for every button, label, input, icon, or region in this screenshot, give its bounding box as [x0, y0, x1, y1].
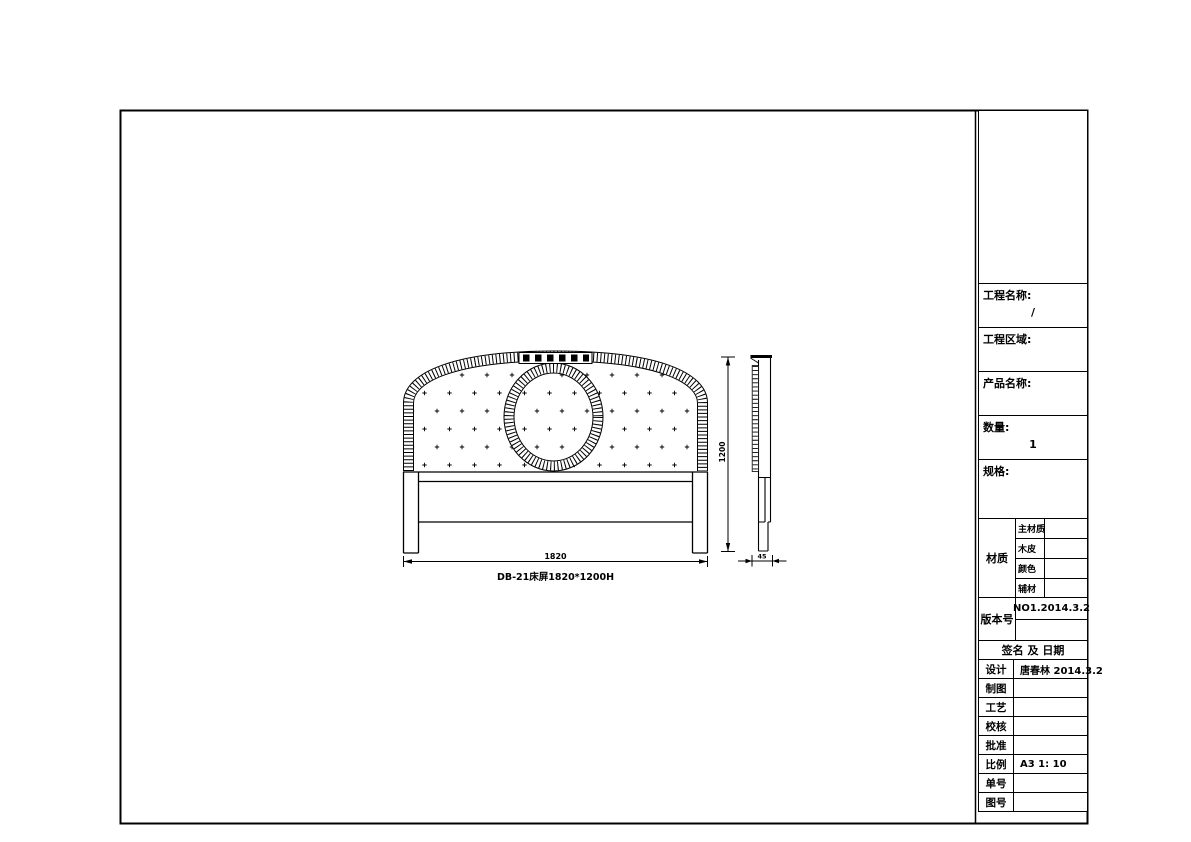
thickness-dim-text: 45 — [757, 553, 767, 561]
drawing-no-value — [1013, 792, 1088, 812]
scale-label: 比例 — [978, 754, 1014, 774]
material-row-label: 颜色 — [1015, 558, 1045, 579]
version-label-cell: 版本号 — [978, 597, 1016, 641]
material-row-value — [1044, 538, 1088, 559]
front-view-label: DB-21床屏1820*1200H — [497, 571, 614, 583]
titleblock-empty-cell — [978, 110, 1088, 284]
order-no-label: 单号 — [978, 773, 1014, 793]
dimension-width: 1820 — [404, 552, 708, 567]
design-label: 设计 — [978, 659, 1014, 679]
width-dim-text: 1820 — [544, 552, 567, 561]
material-row-label: 木皮 — [1015, 538, 1045, 559]
check-value — [1013, 716, 1088, 736]
dimension-thickness: 45 — [738, 553, 787, 567]
project-name-value: / — [979, 306, 1087, 319]
version-empty-cell — [1015, 619, 1088, 641]
process-label: 工艺 — [978, 697, 1014, 717]
process-value — [1013, 697, 1088, 717]
design-value: 唐春林 2014.3.2 — [1013, 659, 1088, 679]
height-dim-text: 1200 — [718, 442, 727, 463]
front-view — [403, 353, 708, 554]
material-row-label: 辅材 — [1015, 578, 1045, 598]
side-post — [759, 358, 771, 551]
project-area-cell: 工程区域: — [978, 327, 1088, 372]
project-name-cell: 工程名称: / — [978, 283, 1088, 328]
dimension-height: 1200 — [718, 357, 735, 552]
draft-label: 制图 — [978, 678, 1014, 698]
order-no-value — [1013, 773, 1088, 793]
version-value-cell: NO1.2014.3.2 — [1015, 597, 1088, 620]
material-row-value — [1044, 578, 1088, 598]
spec-label: 规格: — [983, 463, 1009, 479]
quantity-value: 1 — [979, 438, 1087, 451]
material-label-cell: 材质 — [978, 518, 1016, 598]
project-name-label: 工程名称: — [983, 287, 1031, 303]
drawing-no-label: 图号 — [978, 792, 1014, 812]
product-name-cell: 产品名称: — [978, 371, 1088, 416]
spec-cell: 规格: — [978, 459, 1088, 519]
check-label: 校核 — [978, 716, 1014, 736]
material-row-value — [1044, 558, 1088, 579]
quantity-cell: 数量: 1 — [978, 415, 1088, 460]
side-upholstery-edge — [752, 366, 758, 472]
material-row-value — [1044, 518, 1088, 539]
cad-sheet: 1820 DB-21床屏1820*1200H 1200 45 — [0, 0, 1191, 842]
product-name-label: 产品名称: — [983, 375, 1031, 391]
material-row-label: 主材质 — [1015, 518, 1045, 539]
approve-label: 批准 — [978, 735, 1014, 755]
crest-molding — [519, 353, 592, 364]
signature-header: 签名 及 日期 — [978, 640, 1088, 660]
quantity-label: 数量: — [983, 419, 1009, 435]
draft-value — [1013, 678, 1088, 698]
project-area-label: 工程区域: — [983, 331, 1031, 347]
legs-and-rails — [403, 472, 708, 553]
approve-value — [1013, 735, 1088, 755]
scale-value: A3 1: 10 — [1013, 754, 1088, 774]
side-view — [751, 357, 773, 552]
